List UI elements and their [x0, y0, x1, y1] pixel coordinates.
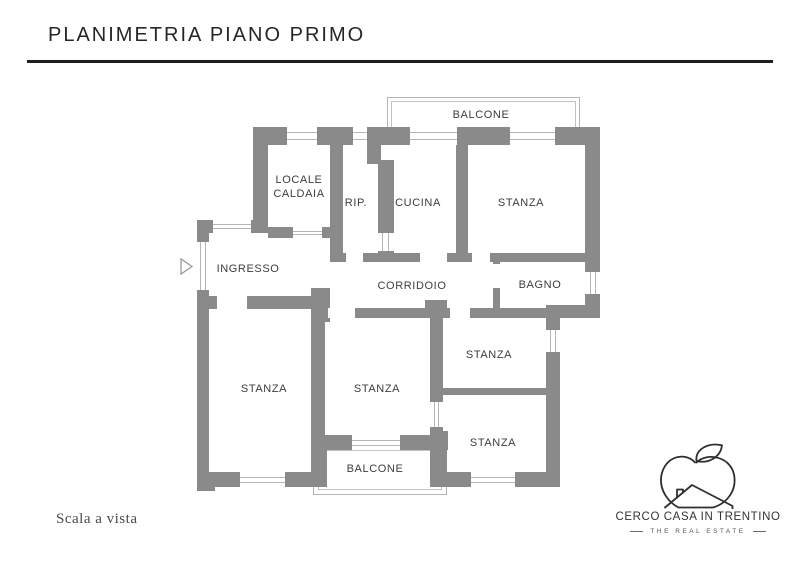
window-ingresso-top: [213, 220, 251, 233]
door-stanza-ne: [472, 253, 490, 262]
logo-dash-right: [753, 531, 766, 532]
door-stanza-e1: [450, 308, 470, 318]
door-ingresso-stanza: [217, 296, 247, 309]
entrance-door: [197, 242, 209, 290]
room-label-balcone-bottom: BALCONE: [347, 463, 404, 475]
room-label-cucina: CUCINA: [395, 197, 441, 209]
window-stanza-w-bottom: [240, 472, 285, 487]
scale-note: Scala a vista: [56, 511, 137, 528]
floor-plan-page: PLANIMETRIA PIANO PRIMO: [0, 0, 800, 578]
window-caldaia-bottom: [293, 227, 322, 238]
room-label-corridoio: CORRIDOIO: [378, 280, 447, 292]
room-label-stanza-c: STANZA: [354, 383, 400, 395]
window-cucina-balcony: [410, 127, 457, 145]
window-top-small: [353, 127, 367, 145]
room-label-bagno: BAGNO: [519, 279, 562, 291]
window-rip-cucina: [378, 233, 394, 251]
room-label-stanza-e1: STANZA: [466, 349, 512, 361]
entrance-arrow-icon: [181, 259, 192, 274]
room-label-stanza-w: STANZA: [241, 383, 287, 395]
window-bagno-right: [585, 272, 600, 294]
window-caldaia-top: [287, 127, 317, 145]
window-stanza-c-e2: [430, 402, 443, 427]
door-cucina: [420, 253, 447, 262]
agency-logo: CERCO CASA IN TRENTINO THE REAL ESTATE: [612, 443, 784, 535]
apple-house-logo-icon: [653, 443, 743, 509]
room-label-ingresso: INGRESSO: [217, 263, 280, 275]
window-stanza-e2-bottom: [471, 472, 515, 487]
door-balcony-bottom: [352, 435, 400, 450]
room-label-stanza-ne: STANZA: [498, 197, 544, 209]
window-stanza-e1-right: [546, 330, 560, 352]
door-rip: [346, 253, 363, 262]
room-label-locale-caldaia-2: CALDAIA: [273, 188, 324, 200]
logo-tagline-row: THE REAL ESTATE: [630, 528, 765, 535]
door-stanza-c: [328, 308, 355, 318]
logo-name: CERCO CASA IN TRENTINO: [615, 511, 780, 523]
room-label-balcone-top: BALCONE: [453, 109, 510, 121]
window-stanza-balcony: [510, 127, 555, 145]
room-label-stanza-e2: STANZA: [470, 437, 516, 449]
logo-dash-left: [630, 531, 643, 532]
room-label-rip: RIP.: [345, 197, 367, 209]
room-label-locale-caldaia-1: LOCALE: [275, 174, 322, 186]
logo-tagline: THE REAL ESTATE: [650, 528, 745, 535]
door-bagno: [493, 264, 500, 288]
